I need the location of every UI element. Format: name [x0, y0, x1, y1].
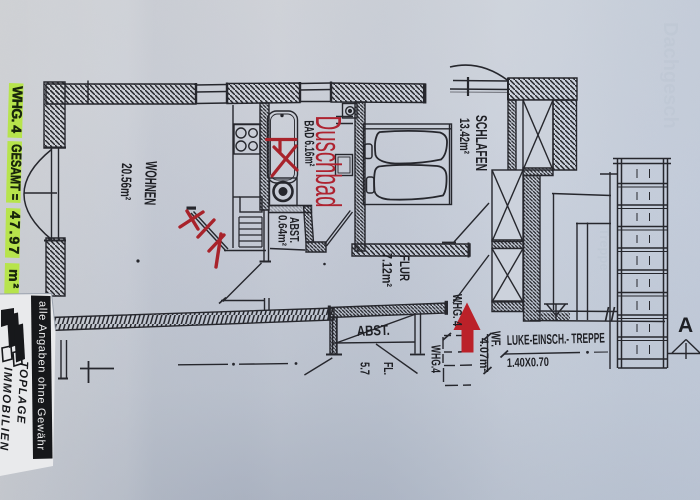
svg-text:47.97: 47.97: [6, 211, 23, 255]
svg-text:Duschbad: Duschbad: [308, 116, 349, 208]
svg-text:A: A: [678, 314, 693, 337]
svg-text:ABST.: ABST.: [357, 323, 391, 340]
svg-text:WHG.4: WHG.4: [429, 345, 443, 373]
svg-text:4.07m²: 4.07m²: [477, 338, 491, 372]
svg-text:LUKE-EINSCH.- TREPPE: LUKE-EINSCH.- TREPPE: [507, 329, 605, 348]
svg-text:ABST.: ABST.: [287, 217, 301, 243]
svg-text:m²: m²: [6, 269, 23, 289]
svg-text:0.64m²: 0.64m²: [276, 215, 288, 246]
svg-text:13.42m²: 13.42m²: [457, 118, 473, 154]
svg-text:7.12m²: 7.12m²: [380, 253, 395, 287]
svg-text:SCHLAFEN: SCHLAFEN: [472, 115, 489, 171]
svg-text:Dachgesch: Dachgesch: [659, 22, 681, 129]
svg-text:WOHNEN: WOHNEN: [140, 161, 159, 206]
svg-text:1.40X0.70: 1.40X0.70: [507, 355, 549, 370]
svg-text:alle Angaben ohne Gewähr: alle Angaben ohne Gewähr: [34, 301, 48, 450]
svg-text:FLUR: FLUR: [397, 255, 413, 281]
svg-text:5.7: 5.7: [358, 362, 372, 375]
svg-text:FL.: FL.: [381, 362, 395, 375]
svg-text:WHG. 4: WHG. 4: [450, 294, 464, 326]
svg-text:20.56m²: 20.56m²: [117, 163, 134, 201]
svg-text:GESAMT =: GESAMT =: [7, 144, 25, 200]
svg-text:WHG. 4: WHG. 4: [9, 86, 26, 134]
